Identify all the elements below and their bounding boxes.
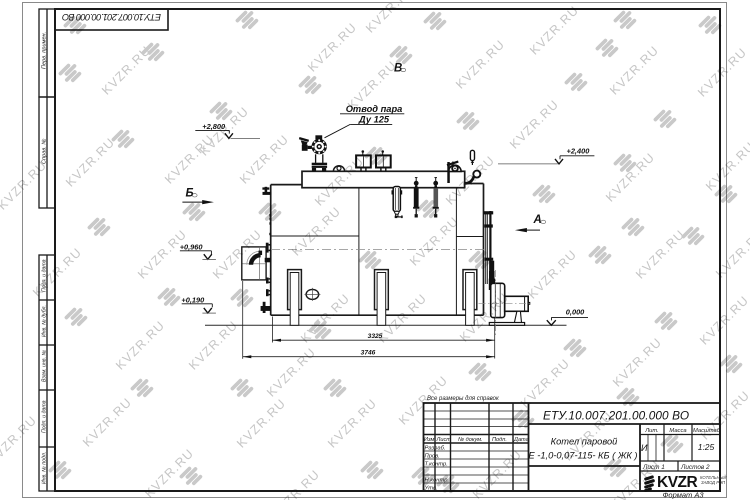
svg-text:KVZR.RU: KVZR.RU (527, 3, 582, 58)
svg-text:Дата: Дата (513, 437, 529, 443)
svg-text:KVZR.RU: KVZR.RU (30, 245, 85, 300)
svg-text:Подп. и дата: Подп. и дата (42, 400, 48, 433)
svg-text:0,000: 0,000 (566, 307, 585, 316)
svg-text:KVZR.RU: KVZR.RU (603, 150, 658, 205)
svg-text:А: А (533, 214, 542, 226)
svg-text:KVZR.RU: KVZR.RU (80, 395, 135, 450)
svg-text:Утв.: Утв. (424, 486, 438, 492)
svg-text:KVZR.RU: KVZR.RU (0, 413, 40, 468)
svg-text:KVZR.RU: KVZR.RU (237, 132, 292, 187)
svg-text:Инв. № дубл.: Инв. № дубл. (42, 305, 48, 337)
svg-text:1:25: 1:25 (698, 442, 715, 452)
svg-text:KVZR.RU: KVZR.RU (268, 467, 323, 500)
svg-text:KVZR.RU: KVZR.RU (407, 214, 462, 269)
svg-text:KVZR.RU: KVZR.RU (695, 45, 750, 100)
svg-text:KVZR.RU: KVZR.RU (363, 0, 418, 36)
svg-text:KVZR.RU: KVZR.RU (305, 20, 360, 75)
svg-text:KVZR.RU: KVZR.RU (698, 388, 750, 443)
svg-text:Б: Б (186, 188, 194, 200)
svg-text:Все размеры для справок: Все размеры для справок (427, 396, 500, 402)
svg-text:KVZR.RU: KVZR.RU (713, 226, 750, 281)
svg-text:KVZR.RU: KVZR.RU (697, 293, 750, 348)
svg-text:И: И (641, 443, 648, 453)
svg-text:KVZR.RU: KVZR.RU (289, 204, 344, 259)
svg-text:Справ. №: Справ. № (42, 139, 48, 164)
svg-text:+0,960: +0,960 (180, 243, 204, 252)
svg-text:KVZR.RU: KVZR.RU (113, 318, 168, 373)
svg-text:Лит.: Лит. (644, 428, 659, 434)
svg-text:+0,190: +0,190 (181, 296, 205, 305)
svg-text:KVZR.RU: KVZR.RU (453, 37, 508, 92)
svg-text:+2,400: +2,400 (567, 146, 591, 155)
svg-text:KVZR.RU: KVZR.RU (470, 447, 525, 500)
svg-text:KVZR.RU: KVZR.RU (186, 318, 241, 373)
svg-text:KVZR.RU: KVZR.RU (298, 291, 353, 346)
svg-text:Пров.: Пров. (425, 454, 440, 460)
svg-text:Лист: Лист (436, 437, 452, 443)
svg-text:KVZR.RU: KVZR.RU (525, 247, 580, 302)
svg-text:3746: 3746 (361, 350, 376, 357)
svg-text:Взам. инв. №: Взам. инв. № (42, 350, 48, 382)
svg-text:Масса: Масса (669, 428, 687, 434)
svg-text:№ докум.: № докум. (458, 437, 483, 443)
svg-text:KVZR.RU: KVZR.RU (507, 97, 562, 152)
svg-text:Е -1,0-0,07-115- КБ ( ЖК ): Е -1,0-0,07-115- КБ ( ЖК ) (528, 451, 637, 461)
svg-text:ЕТУ.10.007.201.00.000 ВО: ЕТУ.10.007.201.00.000 ВО (543, 409, 689, 423)
svg-text:KVZR.RU: KVZR.RU (63, 135, 118, 190)
svg-text:ЗАВОД РЭП: ЗАВОД РЭП (701, 480, 726, 485)
svg-text:Листов 2: Листов 2 (680, 464, 710, 471)
svg-text:KVZR.RU: KVZR.RU (610, 335, 665, 390)
svg-text:Инв. № подл.: Инв. № подл. (42, 452, 48, 484)
svg-text:Формат А3: Формат А3 (662, 491, 704, 500)
svg-text:KVZR.RU: KVZR.RU (325, 396, 380, 451)
svg-text:KVZR: KVZR (657, 474, 698, 491)
svg-text:Изм.: Изм. (424, 437, 436, 443)
svg-text:KVZR.RU: KVZR.RU (0, 158, 50, 213)
svg-text:KVZR.RU: KVZR.RU (264, 345, 319, 400)
svg-text:KVZR.RU: KVZR.RU (633, 227, 688, 282)
svg-text:KVZR.RU: KVZR.RU (234, 396, 289, 451)
svg-text:Т.контр.: Т.контр. (425, 462, 448, 468)
svg-text:Разраб.: Разраб. (425, 446, 446, 452)
svg-text:Перв. примен.: Перв. примен. (42, 32, 48, 69)
svg-text:Подп.: Подп. (492, 437, 507, 443)
svg-text:Ду 125: Ду 125 (358, 115, 390, 125)
svg-text:KVZR.RU: KVZR.RU (135, 227, 190, 282)
